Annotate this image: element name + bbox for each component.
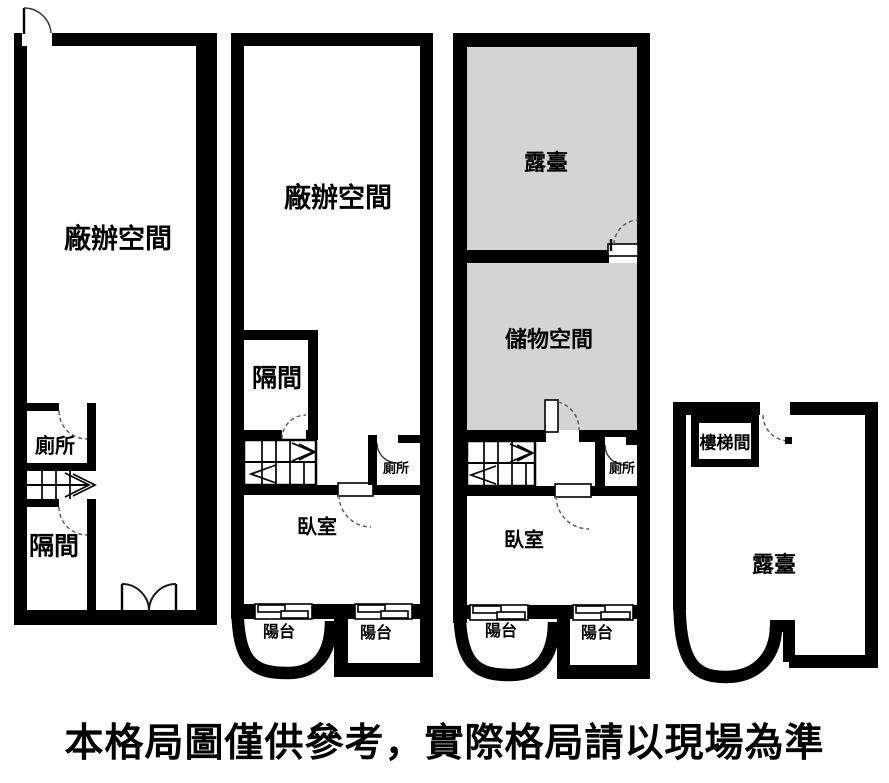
room-label-storage: 儲物空間 [505,327,593,352]
room-label-balcony: 陽台 [581,623,613,642]
room-label-office: 廠辦空間 [284,182,392,213]
door-hinge [785,437,792,444]
wall [308,330,318,440]
door-opening [377,435,398,443]
outer-wall [673,402,686,610]
room-label-toilet: 廁所 [609,460,635,475]
door-opening [605,437,626,445]
wall [557,610,570,673]
room-label-partition: 隔間 [29,533,79,561]
wall [453,486,650,496]
outer-wall [637,33,650,679]
outer-wall [420,33,433,677]
wall [87,403,96,471]
wall [368,443,377,485]
wall [334,663,433,677]
window-pane [381,611,408,618]
room-label-toilet: 廁所 [383,460,409,475]
room-label-office: 廠辦空間 [64,223,172,254]
wall [27,463,96,471]
wall [244,430,318,440]
door-opening [22,33,52,46]
room-label-partition: 隔間 [252,365,302,393]
wall [557,665,650,679]
door-arc [556,496,589,529]
floor-plans-canvas: 廠辦空間 廁所 隔間 廠辦空間 [0,0,889,710]
room-label-terrace: 露臺 [752,552,796,577]
door-opening [59,403,87,411]
outer-wall [231,33,433,46]
wall [595,445,605,486]
room-label-terrace: 露臺 [524,150,568,175]
floor-plan-3: 露臺 儲物空間 廁所 臥室 [453,33,650,679]
door-opening [760,402,790,415]
room-label-balcony: 陽台 [263,622,295,641]
wall [87,507,96,610]
room-label-balcony: 陽台 [360,623,392,642]
room-label-bedroom: 臥室 [297,514,337,538]
room-label-bedroom: 臥室 [504,527,544,551]
window-pane [601,612,630,619]
room-label-balcony: 陽台 [485,621,517,640]
interior [27,46,196,610]
disclaimer-caption: 本格局圖僅供參考，實際格局請以現場為準 [0,712,889,768]
outer-wall [865,402,878,668]
floor-plan-1: 廠辦空間 廁所 隔間 [14,8,217,625]
window-pane [497,612,525,619]
door-arc [24,8,51,33]
door-leaf [608,244,638,256]
floor-plan-4: 樓梯間 露臺 [673,402,878,677]
door-opening [282,430,306,440]
door-opening [59,499,87,507]
outer-wall [231,33,244,606]
wall [244,485,420,495]
door-leaf [555,484,591,497]
door-leaf [338,483,373,496]
window-pane [281,611,308,618]
room-label-stairwell: 樓梯間 [700,432,751,452]
floor-plan-sheet: 廠辦空間 廁所 隔間 廠辦空間 [0,0,889,783]
door-leaf [545,400,558,432]
outer-wall [453,33,467,623]
outer-wall [453,33,650,47]
floor-plan-2: 廠辦空間 隔間 廁所 臥室 [231,33,433,677]
room-label-toilet: 廁所 [35,433,75,457]
outer-wall [789,655,878,668]
wall [244,330,318,340]
